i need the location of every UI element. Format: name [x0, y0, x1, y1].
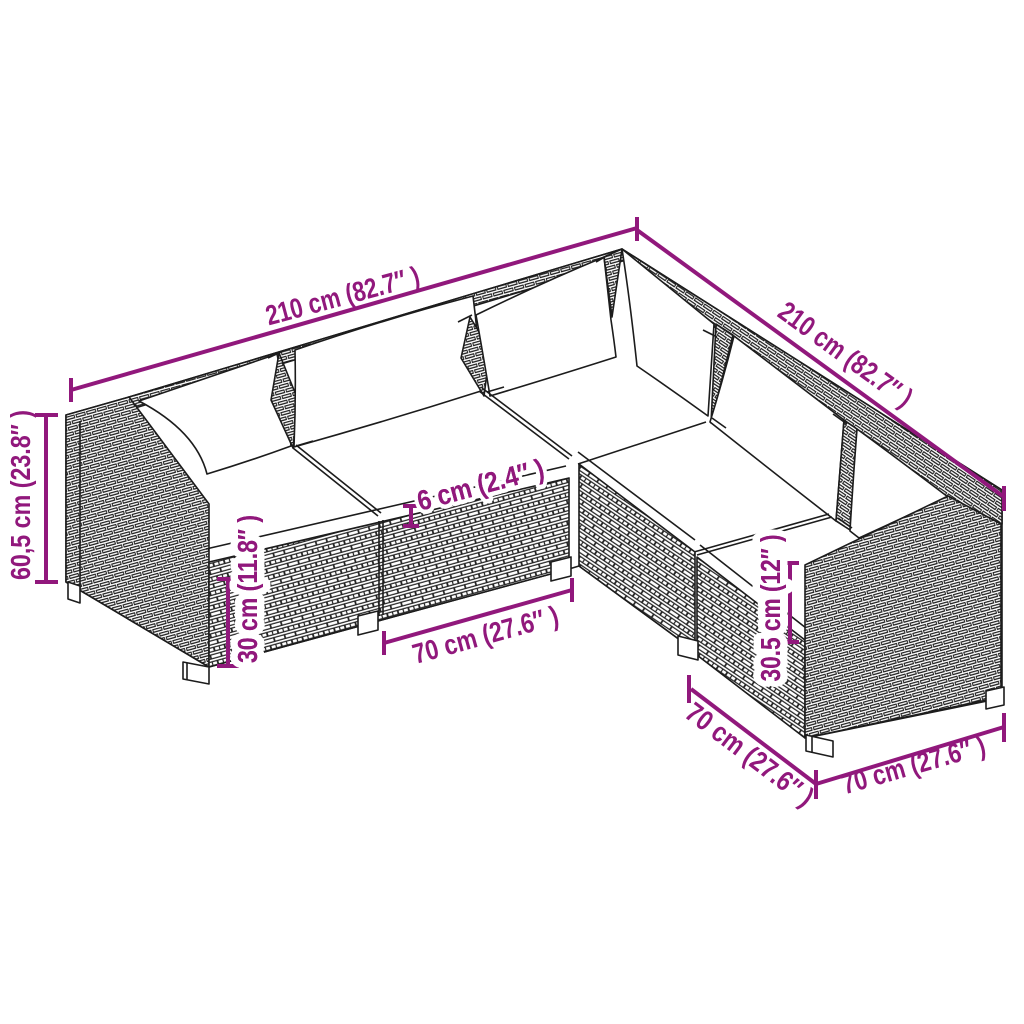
svg-text:30.5 cm (12″ ): 30.5 cm (12″ )	[755, 535, 786, 682]
svg-text:30 cm (11.8″ ): 30 cm (11.8″ )	[232, 515, 263, 663]
svg-text:60,5 cm (23.8″ ): 60,5 cm (23.8″ )	[5, 410, 36, 580]
